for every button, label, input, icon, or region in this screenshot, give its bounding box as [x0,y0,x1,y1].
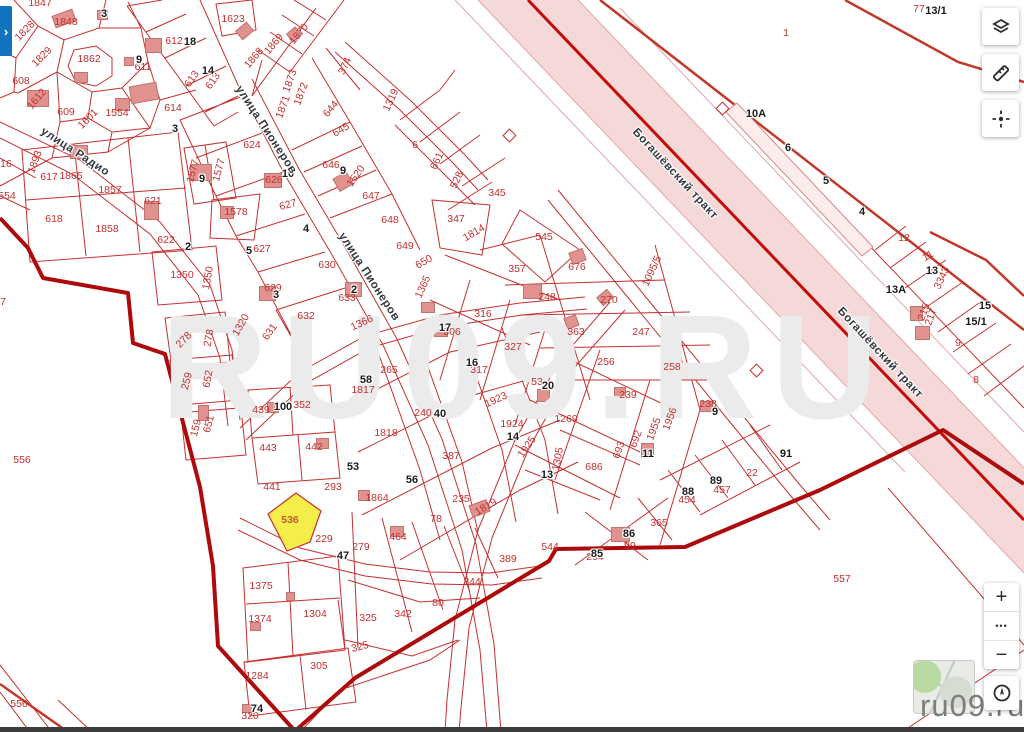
parcel-label[interactable]: 265 [380,364,398,376]
parcel-label[interactable]: 648 [381,214,399,226]
building-badge: 86 [623,528,635,540]
parcel-label[interactable]: 442 [305,441,323,453]
parcel-label[interactable]: 1623 [221,13,244,25]
parcel-label[interactable]: 544 [541,541,559,553]
building-badge: 14 [507,431,519,443]
parcel-label[interactable]: 1 [783,27,789,39]
parcel-label[interactable]: 630 [318,259,336,271]
building-badge: 3 [172,123,178,135]
building-badge: 15/1 [965,316,986,328]
parcel-label[interactable]: 1304 [303,608,326,620]
parcel-label[interactable]: 279 [352,541,370,553]
parcel-label[interactable]: 1818 [374,427,397,439]
parcel-label[interactable]: 1848 [54,16,77,28]
building-badge: 18 [184,36,196,48]
building [915,326,930,340]
parcel-label[interactable]: 1375 [249,580,272,592]
parcel-label[interactable]: 556 [13,454,31,466]
building-badge: 17 [439,322,451,334]
building-badge: 4 [859,206,865,218]
building-badge: 88 [682,486,694,498]
building-badge: 3 [273,289,279,301]
building-badge: 53 [347,461,359,473]
parcel-label[interactable]: 9 [955,337,961,349]
parcel-label[interactable]: 632 [297,310,315,322]
measure-button[interactable] [982,54,1019,91]
parcel-label[interactable]: 614 [164,102,182,114]
building-badge: 2 [351,284,357,296]
parcel-label[interactable]: 647 [362,190,380,202]
parcel-label[interactable]: 646 [322,159,340,171]
parcel-label[interactable]: 240 [414,407,432,419]
building-badge: 89 [710,475,722,487]
building-badge: 6 [785,142,791,154]
parcel-label[interactable]: 1857 [98,184,121,196]
parcel-label[interactable]: 1374 [248,613,271,625]
zoom-in-button[interactable]: + [984,583,1019,611]
parcel-label[interactable]: 609 [57,106,75,118]
parcel-label[interactable]: 77 [913,3,925,15]
building-badge: 58 [360,374,372,386]
parcel-label[interactable]: 1554 [105,107,128,119]
parcel-label[interactable]: 347 [447,213,465,225]
parcel-label[interactable]: 7 [0,296,6,308]
parcel-label[interactable]: 247 [632,326,650,338]
parcel-label[interactable]: 258 [663,361,681,373]
building-badge: 74 [251,703,263,715]
parcel-label[interactable]: 545 [535,231,553,243]
building-badge: 9 [136,54,142,66]
map-canvas[interactable] [0,0,1024,732]
zoom-out-button[interactable]: − [984,640,1019,669]
parcel-label[interactable]: 556 [10,698,28,710]
building-badge: 13/1 [925,5,946,17]
parcel-label[interactable]: 686 [585,461,603,473]
parcel-label[interactable]: 1864 [365,492,388,504]
parcel-label[interactable]: 649 [396,240,414,252]
parcel-label[interactable]: 78 [430,513,442,525]
parcel-label[interactable]: 344 [463,576,481,588]
parcel-label[interactable]: 342 [394,608,412,620]
building-badge: 47 [337,550,349,562]
road-marker [503,129,516,142]
parcel-label[interactable]: 235 [452,493,470,505]
parcel-label[interactable]: 345 [488,187,506,199]
parcel-label[interactable]: 1847 [28,0,51,9]
building-badge: 40 [434,408,446,420]
parcel-label[interactable]: 239 [619,389,637,401]
building-badge: 100 [274,401,292,413]
road-marker [750,364,763,377]
parcel-label[interactable]: 617 [40,171,58,183]
parcel-label[interactable]: 6 [412,139,418,151]
parcel-label[interactable]: 621 [144,195,162,207]
selected-parcel-label[interactable]: 536 [281,514,299,526]
parcel-label[interactable]: 554 [0,190,16,202]
parcel-label[interactable]: 363 [567,326,585,338]
building [74,72,88,83]
parcel-label[interactable]: 357 [508,263,526,275]
parcel-label[interactable]: 22 [746,467,758,479]
building-badge: 15 [979,300,991,312]
building-badge: 9 [199,173,205,185]
chevron-right-icon: › [4,24,8,39]
parcel-label[interactable]: 1865 [59,170,82,182]
parcel-label[interactable]: 627 [253,243,271,255]
parcel-label[interactable]: 293 [324,481,342,493]
parcel-label[interactable]: 16 [0,158,12,170]
parcel-label[interactable]: 441 [263,481,281,493]
building [421,302,435,313]
building [286,592,295,601]
parcel-label[interactable]: 305 [310,660,328,672]
building-badge: 9 [340,165,346,177]
parcel-label[interactable]: 270 [600,294,618,306]
building-badge: 16 [466,357,478,369]
parcel-label[interactable]: 365 [650,517,668,529]
parcel-label[interactable]: 612 [165,35,183,47]
building-badge: 91 [780,448,792,460]
building-badge: 13 [926,265,938,277]
parcel-label[interactable]: 626 [265,174,283,186]
parcel-label[interactable]: 327 [504,341,522,353]
parcel-label[interactable]: 1862 [77,53,100,65]
parcel-label[interactable]: 557 [833,573,851,585]
parcel-label[interactable]: 8 [973,374,979,386]
parcel-label[interactable]: 608 [12,75,30,87]
parcel-label[interactable]: 443 [259,442,277,454]
parcel-label[interactable]: 676 [568,261,586,273]
bottom-edge-bar [0,727,1024,732]
parcel-label[interactable]: 325 [359,612,377,624]
building-badge: 10A [746,108,766,120]
building-badge: 11 [642,448,654,460]
parcel-label[interactable]: 248 [538,291,556,303]
building-badge: 85 [591,548,603,560]
parcel-label[interactable]: 1858 [95,223,118,235]
crosshair-icon [991,109,1011,129]
building-badge: 20 [542,380,554,392]
locate-button[interactable] [984,676,1019,710]
zoom-controls: + ••• − [984,583,1019,669]
building-badge: 9 [712,406,718,418]
building [124,57,134,66]
map-viewer: RU09.RU ru09.ru 184718481828182918626081… [0,0,1024,732]
building-badge: 4 [303,223,309,235]
zoom-menu-button[interactable]: ••• [984,611,1019,640]
building-badge: 3 [101,8,107,20]
building-badge: 2 [185,241,191,253]
parcel-label[interactable]: 618 [45,213,63,225]
highway-centerline [528,0,1024,520]
building-badge: 5 [246,245,252,257]
parcel-label[interactable]: 1924 [500,418,523,430]
parcel-label[interactable]: 1578 [224,206,247,218]
parcel-label[interactable]: 352 [293,399,311,411]
building-badge: 13 [541,469,553,481]
building-badge: 56 [406,474,418,486]
layers-icon [991,17,1011,37]
parcel-label[interactable]: 1284 [245,670,268,682]
parcel-label[interactable]: 80 [432,597,444,609]
parcel-label[interactable]: 256 [597,356,615,368]
ruler-icon [991,63,1011,83]
municipal-boundary [0,218,1024,731]
building-badge: 5 [823,175,829,187]
parcel-label[interactable]: 1269 [554,413,577,425]
parcel-lines-right [0,226,1024,732]
parcel-label[interactable]: 229 [315,533,333,545]
layers-button[interactable] [982,8,1019,45]
parcel-label[interactable]: 99 [624,540,636,552]
building-badge: 14 [202,65,214,77]
parcel-label[interactable]: 464 [389,531,407,543]
parcel-label[interactable]: 1350 [170,269,193,281]
parcel-label[interactable]: 439 [252,404,270,416]
building [145,38,162,53]
parcel-label[interactable]: 624 [243,139,261,151]
location-pin-icon [992,683,1012,703]
parcel-label[interactable]: 316 [474,308,492,320]
parcel-label[interactable]: 622 [157,234,175,246]
building-badge: 13A [886,284,906,296]
position-button[interactable] [982,100,1019,137]
parcel-label[interactable]: 12 [898,232,910,244]
parcel-label[interactable]: 389 [499,553,517,565]
parcel-label[interactable]: 387 [442,450,460,462]
sidebar-toggle[interactable]: › [0,6,12,56]
